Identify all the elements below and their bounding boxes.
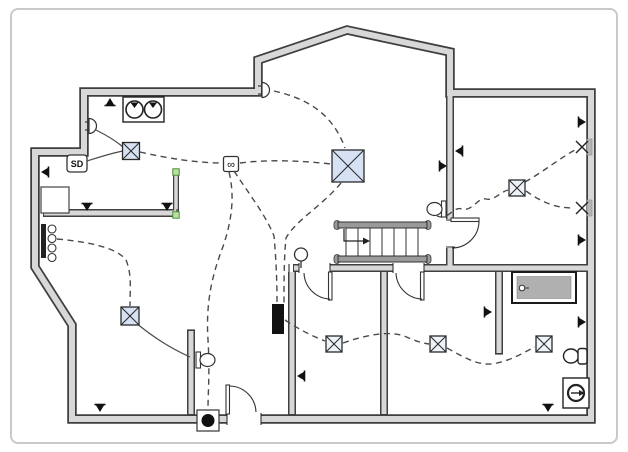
junction-box-light[interactable] — [536, 336, 552, 352]
smoke-detector[interactable]: SD — [67, 155, 87, 172]
junction-box-light[interactable] — [332, 150, 364, 182]
diagram-canvas: SD ∞ — [0, 0, 628, 452]
exhaust-fan[interactable] — [563, 378, 589, 408]
selection-handle[interactable] — [173, 169, 179, 175]
junction-box-light[interactable] — [509, 180, 525, 196]
entry-fixture-box[interactable] — [197, 410, 219, 431]
junction-box-light[interactable] — [121, 307, 139, 325]
junction-box-light[interactable] — [326, 336, 342, 352]
junction-box-light[interactable] — [430, 336, 446, 352]
electrical-panel[interactable] — [272, 304, 284, 334]
toilet[interactable] — [564, 349, 588, 365]
infinity-junction-box[interactable]: ∞ — [224, 157, 239, 172]
bathtub[interactable] — [512, 272, 576, 303]
oval-wall-light[interactable] — [427, 201, 446, 217]
junction-box-light[interactable] — [123, 143, 140, 160]
tub-drain — [519, 285, 525, 291]
canvas-frame — [11, 9, 617, 443]
smoke-detector-label: SD — [71, 159, 84, 169]
infinity-glyph: ∞ — [227, 159, 235, 171]
floor-plan-svg: SD ∞ — [0, 0, 628, 452]
kitchen-cabinet[interactable] — [41, 187, 69, 213]
selection-handle[interactable] — [173, 212, 179, 218]
double-burner-fixture[interactable] — [123, 97, 164, 122]
oval-wall-light[interactable] — [196, 352, 215, 368]
